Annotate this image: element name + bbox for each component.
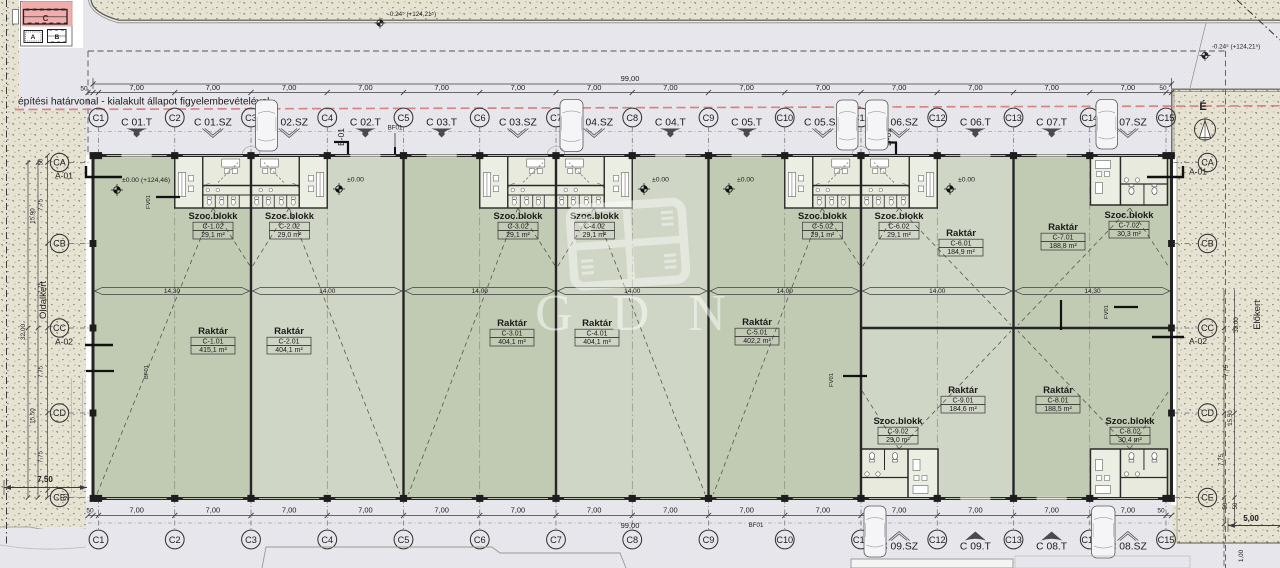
svg-text:7,00: 7,00 [1044, 506, 1059, 515]
svg-text:C-7.01: C-7.01 [1052, 235, 1073, 242]
svg-text:C12: C12 [929, 535, 946, 545]
svg-text:184,9 m²: 184,9 m² [947, 249, 975, 256]
svg-text:7,00: 7,00 [358, 506, 373, 515]
svg-text:±0.00: ±0.00 [347, 177, 364, 184]
svg-text:C-6.01: C-6.01 [950, 241, 971, 248]
svg-text:7,00: 7,00 [1044, 83, 1059, 92]
svg-text:±0.00: ±0.00 [737, 177, 754, 184]
svg-text:C-3.01: C-3.01 [501, 331, 522, 338]
svg-text:7,75: 7,75 [38, 450, 45, 463]
svg-text:184,6 m²: 184,6 m² [949, 406, 977, 413]
svg-text:A-01: A-01 [1189, 167, 1207, 177]
svg-text:C2: C2 [169, 535, 181, 545]
svg-text:-0.24⁵ (+124,21⁵): -0.24⁵ (+124,21⁵) [1212, 44, 1260, 51]
svg-text:C 02.T: C 02.T [350, 118, 382, 129]
svg-text:Szoc.blokk: Szoc.blokk [494, 210, 544, 221]
svg-text:C-1.02: C-1.02 [202, 224, 223, 231]
svg-text:±0.00: ±0.00 [652, 177, 669, 184]
svg-text:50: 50 [86, 508, 94, 515]
svg-text:C-5.02: C-5.02 [812, 224, 833, 231]
svg-text:7,75: 7,75 [1218, 453, 1225, 466]
svg-text:CC: CC [53, 323, 66, 333]
svg-text:CE: CE [1201, 493, 1214, 503]
svg-text:50: 50 [80, 86, 88, 93]
svg-text:7,00: 7,00 [1121, 83, 1136, 92]
svg-text:C10: C10 [776, 535, 793, 545]
svg-text:14,00: 14,00 [319, 288, 336, 295]
svg-text:C6: C6 [474, 113, 486, 123]
svg-text:29,1 m²: 29,1 m² [506, 232, 530, 239]
svg-text:404,1 m²: 404,1 m² [498, 339, 526, 346]
svg-text:A-01: A-01 [55, 171, 73, 181]
svg-text:7,75: 7,75 [38, 365, 45, 378]
svg-text:188,8 m²: 188,8 m² [1049, 243, 1077, 250]
svg-text:7,00: 7,00 [739, 506, 754, 515]
svg-text:7,00: 7,00 [1121, 506, 1136, 515]
svg-text:C9: C9 [703, 113, 715, 123]
svg-text:B: B [55, 34, 60, 41]
svg-text:C15: C15 [1158, 535, 1175, 545]
svg-text:7,00: 7,00 [358, 83, 373, 92]
svg-text:±0.00: ±0.00 [958, 177, 975, 184]
svg-text:7,00: 7,00 [434, 506, 449, 515]
svg-text:C 05.T: C 05.T [731, 118, 763, 129]
svg-text:C-5.01: C-5.01 [746, 330, 767, 337]
svg-text:7,00: 7,00 [282, 506, 297, 515]
svg-text:C4: C4 [321, 113, 333, 123]
svg-text:FV01: FV01 [1104, 305, 1110, 319]
svg-text:C 06.T: C 06.T [960, 118, 992, 129]
svg-text:C8: C8 [626, 535, 638, 545]
svg-text:Szoc.blokk: Szoc.blokk [874, 415, 924, 426]
svg-text:14,30: 14,30 [164, 288, 181, 295]
svg-text:14,00: 14,00 [472, 288, 489, 295]
svg-text:29,1 m²: 29,1 m² [811, 232, 835, 239]
svg-text:29,1 m²: 29,1 m² [887, 232, 911, 239]
svg-text:99,00: 99,00 [621, 74, 640, 83]
svg-text:15,50: 15,50 [30, 408, 37, 424]
svg-text:29,1 m²: 29,1 m² [583, 232, 607, 239]
svg-text:C: C [43, 14, 49, 23]
svg-text:C-2.01: C-2.01 [278, 339, 299, 346]
svg-text:C-6.02: C-6.02 [888, 224, 909, 231]
svg-text:C-9.02: C-9.02 [887, 429, 908, 436]
svg-text:7,00: 7,00 [968, 83, 983, 92]
svg-text:C 03.T: C 03.T [426, 118, 458, 129]
svg-text:C 01.T: C 01.T [121, 118, 153, 129]
svg-text:építési határvonal - kialakult: építési határvonal - kialakult állapot f… [18, 97, 269, 108]
svg-text:Raktár: Raktár [742, 317, 772, 328]
svg-text:29,0 m²: 29,0 m² [886, 437, 910, 444]
svg-text:C10: C10 [776, 113, 793, 123]
svg-text:C1: C1 [93, 113, 105, 123]
svg-text:50: 50 [64, 493, 70, 500]
svg-text:29,1 m²: 29,1 m² [201, 232, 225, 239]
svg-text:C 07.T: C 07.T [1036, 118, 1068, 129]
svg-text:CA: CA [53, 158, 66, 168]
svg-text:C6: C6 [474, 535, 486, 545]
svg-text:C 03.SZ: C 03.SZ [499, 118, 537, 129]
svg-text:7,75: 7,75 [1223, 364, 1230, 377]
svg-text:É: É [1199, 100, 1206, 113]
svg-text:99,00: 99,00 [621, 521, 640, 530]
svg-text:50: 50 [1223, 502, 1229, 509]
svg-text:7,00: 7,00 [739, 83, 754, 92]
svg-text:7,00: 7,00 [129, 83, 144, 92]
svg-text:Szoc.blokk: Szoc.blokk [189, 210, 239, 221]
svg-text:A-02: A-02 [1189, 336, 1207, 346]
svg-text:C2: C2 [169, 113, 181, 123]
svg-text:14,00: 14,00 [777, 288, 794, 295]
svg-text:Raktár: Raktár [1048, 222, 1078, 233]
svg-text:7,00: 7,00 [434, 83, 449, 92]
svg-text:30,3 m²: 30,3 m² [1117, 231, 1141, 238]
svg-text:CC: CC [1201, 323, 1214, 333]
svg-text:Raktár: Raktár [274, 326, 304, 337]
svg-text:C-8.01: C-8.01 [1047, 398, 1068, 405]
svg-text:C-1.01: C-1.01 [202, 339, 223, 346]
svg-text:B-01: B-01 [336, 128, 346, 146]
svg-text:7,00: 7,00 [587, 83, 602, 92]
svg-text:30,4 m²: 30,4 m² [1118, 437, 1142, 444]
svg-text:C 08.T: C 08.T [1036, 542, 1068, 553]
svg-text:C-3.02: C-3.02 [507, 224, 528, 231]
svg-text:C 04.T: C 04.T [655, 118, 687, 129]
svg-text:C15: C15 [1158, 113, 1175, 123]
svg-text:415,1 m²: 415,1 m² [199, 347, 227, 354]
svg-text:29,0 m²: 29,0 m² [278, 232, 302, 239]
svg-text:FV01: FV01 [829, 373, 835, 387]
svg-text:A: A [31, 34, 36, 41]
svg-text:7,75: 7,75 [38, 198, 45, 211]
svg-text:C13: C13 [1005, 535, 1022, 545]
svg-text:BF01: BF01 [749, 522, 764, 529]
svg-text:404,1 m²: 404,1 m² [275, 347, 303, 354]
svg-text:Raktár: Raktár [198, 326, 228, 337]
svg-text:CB: CB [53, 239, 66, 249]
svg-text:A-02: A-02 [55, 337, 73, 347]
svg-text:7,00: 7,00 [511, 83, 526, 92]
svg-text:7,00: 7,00 [816, 83, 831, 92]
svg-text:C5: C5 [398, 113, 410, 123]
svg-text:C 05.SZ: C 05.SZ [804, 118, 842, 129]
svg-text:7,00: 7,00 [129, 506, 144, 515]
svg-text:C13: C13 [1005, 113, 1022, 123]
svg-text:C9: C9 [703, 535, 715, 545]
svg-text:C3: C3 [245, 535, 257, 545]
svg-text:C12: C12 [929, 113, 946, 123]
svg-text:C 09.T: C 09.T [960, 542, 992, 553]
svg-text:Szoc.blokk: Szoc.blokk [1106, 415, 1156, 426]
svg-text:50: 50 [1157, 508, 1165, 515]
svg-text:Szoc.blokk: Szoc.blokk [798, 210, 848, 221]
svg-text:7,00: 7,00 [206, 506, 221, 515]
svg-text:C8: C8 [626, 113, 638, 123]
svg-text:7,00: 7,00 [892, 83, 907, 92]
svg-text:C4: C4 [321, 535, 333, 545]
svg-text:Raktár: Raktár [1043, 385, 1073, 396]
svg-text:402,2 m²: 402,2 m² [743, 338, 771, 345]
svg-text:188,5 m²: 188,5 m² [1044, 406, 1072, 413]
svg-text:±0.00 (+124,46): ±0.00 (+124,46) [122, 177, 170, 184]
svg-text:C-9.01: C-9.01 [952, 398, 973, 405]
svg-text:50: 50 [1233, 502, 1239, 509]
svg-text:15,50: 15,50 [1227, 410, 1234, 426]
svg-text:7,00: 7,00 [663, 83, 678, 92]
svg-text:C-2.02: C-2.02 [279, 224, 300, 231]
svg-text:-0.24⁵ (+124,21⁵): -0.24⁵ (+124,21⁵) [388, 11, 436, 18]
svg-text:Raktár: Raktár [497, 318, 527, 329]
svg-text:7,00: 7,00 [816, 506, 831, 515]
svg-text:7,00: 7,00 [206, 83, 221, 92]
svg-text:Szoc.blokk: Szoc.blokk [875, 210, 925, 221]
svg-text:Raktár: Raktár [948, 385, 978, 396]
svg-text:C1: C1 [93, 535, 105, 545]
svg-text:C 01.SZ: C 01.SZ [194, 118, 232, 129]
svg-text:7,00: 7,00 [968, 506, 983, 515]
svg-text:Szoc.blokk: Szoc.blokk [265, 210, 315, 221]
svg-text:FV01: FV01 [146, 195, 152, 209]
svg-text:14,30: 14,30 [1084, 288, 1101, 295]
svg-text:32,00: 32,00 [20, 323, 27, 340]
svg-text:CD: CD [1201, 408, 1214, 418]
svg-text:Raktár: Raktár [946, 228, 976, 239]
svg-text:7,00: 7,00 [511, 506, 526, 515]
svg-text:CD: CD [53, 408, 66, 418]
svg-text:15,90: 15,90 [30, 208, 37, 224]
svg-text:32,00: 32,00 [1233, 317, 1240, 333]
svg-text:C5: C5 [398, 535, 410, 545]
svg-text:C-8.02: C-8.02 [1119, 429, 1140, 436]
svg-text:G D N: G D N [535, 285, 739, 342]
svg-text:Szoc.blokk: Szoc.blokk [1105, 209, 1155, 220]
svg-text:7,00: 7,00 [663, 506, 678, 515]
svg-text:7,00: 7,00 [892, 506, 907, 515]
svg-text:7,50: 7,50 [37, 475, 53, 484]
svg-text:7,00: 7,00 [587, 506, 602, 515]
svg-text:C-7.02: C-7.02 [1118, 223, 1139, 230]
svg-text:50: 50 [39, 158, 45, 165]
svg-text:BF01: BF01 [388, 125, 403, 132]
svg-text:CB: CB [1201, 239, 1214, 249]
svg-text:7,00: 7,00 [282, 83, 297, 92]
svg-text:7,75: 7,75 [38, 281, 45, 294]
svg-text:BF01: BF01 [144, 365, 150, 379]
svg-text:Előkert: Előkert [1252, 300, 1263, 330]
svg-text:50: 50 [1159, 85, 1167, 92]
svg-text:5,00: 5,00 [1243, 514, 1259, 523]
svg-text:1,00: 1,00 [1238, 549, 1245, 562]
svg-text:C7: C7 [550, 535, 562, 545]
svg-text:14,00: 14,00 [929, 288, 946, 295]
